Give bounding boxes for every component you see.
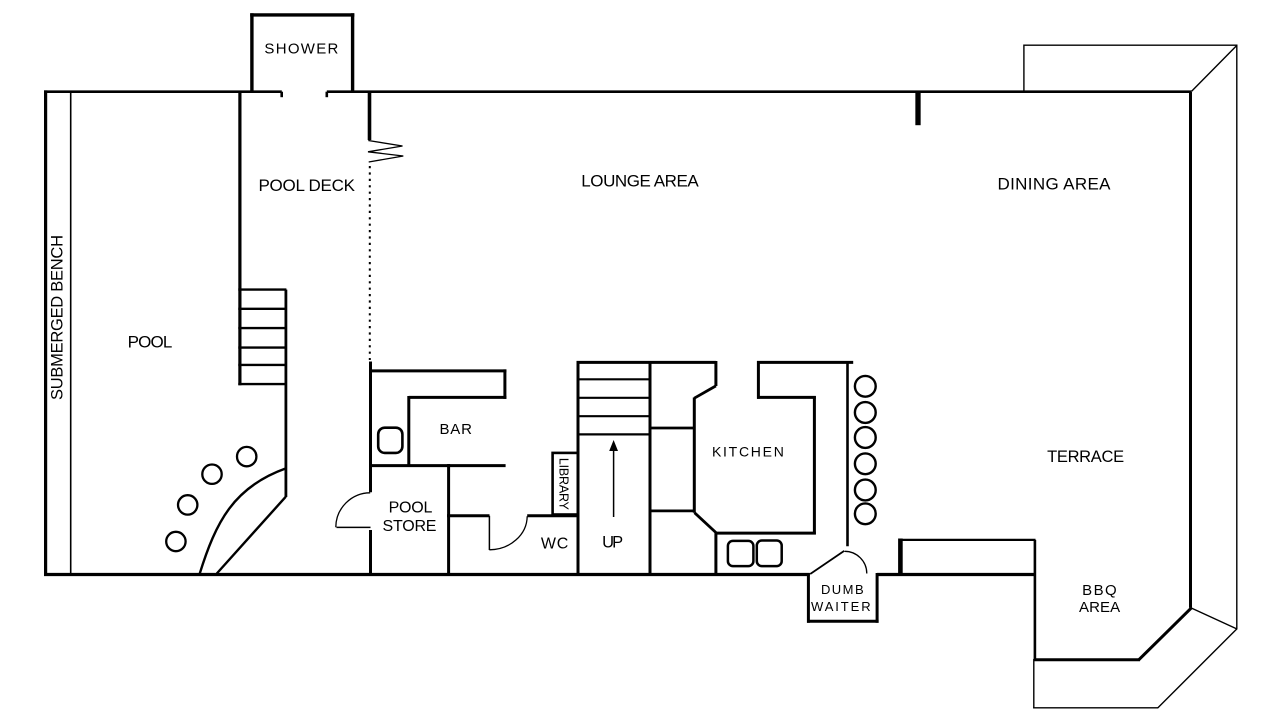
svg-text:TERRACE: TERRACE (1047, 448, 1124, 466)
svg-text:DUMB: DUMB (821, 582, 864, 597)
svg-text:LOUNGE AREA: LOUNGE AREA (581, 171, 699, 190)
svg-text:BBQ: BBQ (1082, 582, 1117, 599)
svg-text:BAR: BAR (439, 421, 472, 438)
svg-text:DINING AREA: DINING AREA (998, 175, 1112, 194)
svg-text:POOL DECK: POOL DECK (258, 176, 355, 195)
svg-text:UP: UP (602, 534, 623, 552)
svg-text:WC: WC (541, 536, 569, 553)
svg-text:SUBMERGED BENCH: SUBMERGED BENCH (48, 235, 66, 400)
svg-text:STORE: STORE (383, 518, 437, 535)
svg-text:SHOWER: SHOWER (264, 40, 338, 57)
svg-text:POOL: POOL (128, 333, 173, 352)
svg-text:POOL: POOL (389, 500, 433, 517)
svg-text:LIBRARY: LIBRARY (557, 458, 571, 511)
svg-text:KITCHEN: KITCHEN (712, 443, 784, 459)
svg-text:AREA: AREA (1079, 599, 1120, 616)
svg-text:WAITER: WAITER (811, 599, 871, 614)
